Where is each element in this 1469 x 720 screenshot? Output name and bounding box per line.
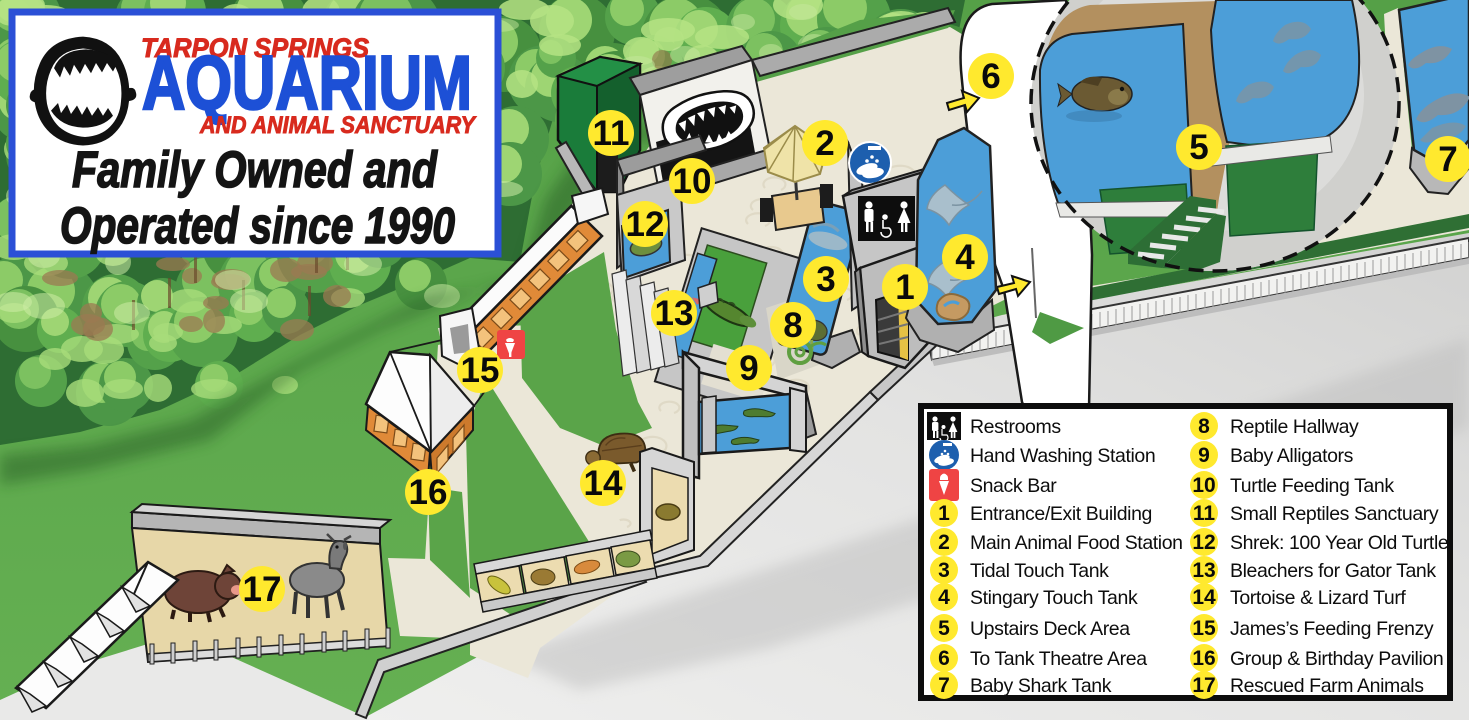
svg-text:Entrance/Exit Building: Entrance/Exit Building xyxy=(970,503,1152,525)
svg-text:Tidal Touch Tank: Tidal Touch Tank xyxy=(970,560,1109,582)
svg-text:17: 17 xyxy=(1192,674,1215,697)
svg-text:8: 8 xyxy=(783,306,802,345)
svg-text:2: 2 xyxy=(815,124,834,163)
svg-text:1: 1 xyxy=(895,268,914,307)
svg-text:4: 4 xyxy=(955,238,975,277)
svg-text:10: 10 xyxy=(1192,474,1215,497)
svg-text:Stingary Touch Tank: Stingary Touch Tank xyxy=(970,587,1138,609)
svg-text:5: 5 xyxy=(938,617,950,640)
svg-text:Upstairs Deck Area: Upstairs Deck Area xyxy=(970,618,1130,640)
svg-text:To Tank Theatre Area: To Tank Theatre Area xyxy=(970,648,1147,670)
svg-text:15: 15 xyxy=(461,351,500,390)
svg-text:3: 3 xyxy=(938,559,950,582)
svg-text:9: 9 xyxy=(739,349,758,388)
svg-text:7: 7 xyxy=(1438,140,1457,179)
svg-text:6: 6 xyxy=(981,57,1000,96)
svg-text:11: 11 xyxy=(593,114,630,153)
svg-text:15: 15 xyxy=(1192,617,1216,640)
svg-text:2: 2 xyxy=(938,531,950,554)
svg-text:James’s Feeding Frenzy: James’s Feeding Frenzy xyxy=(1230,618,1434,640)
svg-text:16: 16 xyxy=(409,473,448,512)
svg-text:6: 6 xyxy=(938,647,950,670)
svg-text:AND ANIMAL SANCTUARY: AND ANIMAL SANCTUARY xyxy=(199,112,477,139)
svg-text:Baby Shark Tank: Baby Shark Tank xyxy=(970,675,1112,697)
svg-text:9: 9 xyxy=(1198,444,1210,467)
svg-text:Tortoise & Lizard Turf: Tortoise & Lizard Turf xyxy=(1230,587,1406,609)
svg-text:12: 12 xyxy=(1192,531,1215,554)
svg-text:Shrek: 100 Year Old Turtle: Shrek: 100 Year Old Turtle xyxy=(1230,532,1448,554)
svg-text:5: 5 xyxy=(1189,128,1208,167)
svg-text:13: 13 xyxy=(655,294,694,333)
svg-text:7: 7 xyxy=(938,674,950,697)
svg-text:Group & Birthday Pavilion: Group & Birthday Pavilion xyxy=(1230,648,1443,670)
svg-text:Small Reptiles Sanctuary: Small Reptiles Sanctuary xyxy=(1230,503,1439,525)
svg-text:Rescued Farm Animals: Rescued Farm Animals xyxy=(1230,675,1424,697)
svg-text:1: 1 xyxy=(938,502,950,525)
svg-text:Family Owned and: Family Owned and xyxy=(72,141,438,198)
svg-text:Snack Bar: Snack Bar xyxy=(970,475,1057,497)
svg-text:Main Animal Food Station: Main Animal Food Station xyxy=(970,532,1183,554)
svg-text:Restrooms: Restrooms xyxy=(970,416,1061,438)
svg-text:Operated since 1990: Operated since 1990 xyxy=(60,197,455,254)
svg-text:8: 8 xyxy=(1198,415,1210,438)
svg-text:Hand Washing Station: Hand Washing Station xyxy=(970,445,1155,467)
svg-text:12: 12 xyxy=(626,205,665,244)
svg-text:Turtle Feeding Tank: Turtle Feeding Tank xyxy=(1230,475,1394,497)
svg-text:14: 14 xyxy=(584,464,623,503)
svg-text:10: 10 xyxy=(673,162,712,201)
svg-text:Reptile Hallway: Reptile Hallway xyxy=(1230,416,1359,438)
svg-text:Bleachers for Gator Tank: Bleachers for Gator Tank xyxy=(1230,560,1436,582)
svg-text:Baby Alligators: Baby Alligators xyxy=(1230,445,1354,467)
svg-text:3: 3 xyxy=(816,260,835,299)
svg-text:4: 4 xyxy=(938,586,950,609)
svg-text:17: 17 xyxy=(243,570,282,609)
svg-text:14: 14 xyxy=(1192,586,1216,609)
svg-text:13: 13 xyxy=(1192,559,1215,582)
svg-text:11: 11 xyxy=(1193,502,1216,525)
svg-text:16: 16 xyxy=(1192,647,1215,670)
